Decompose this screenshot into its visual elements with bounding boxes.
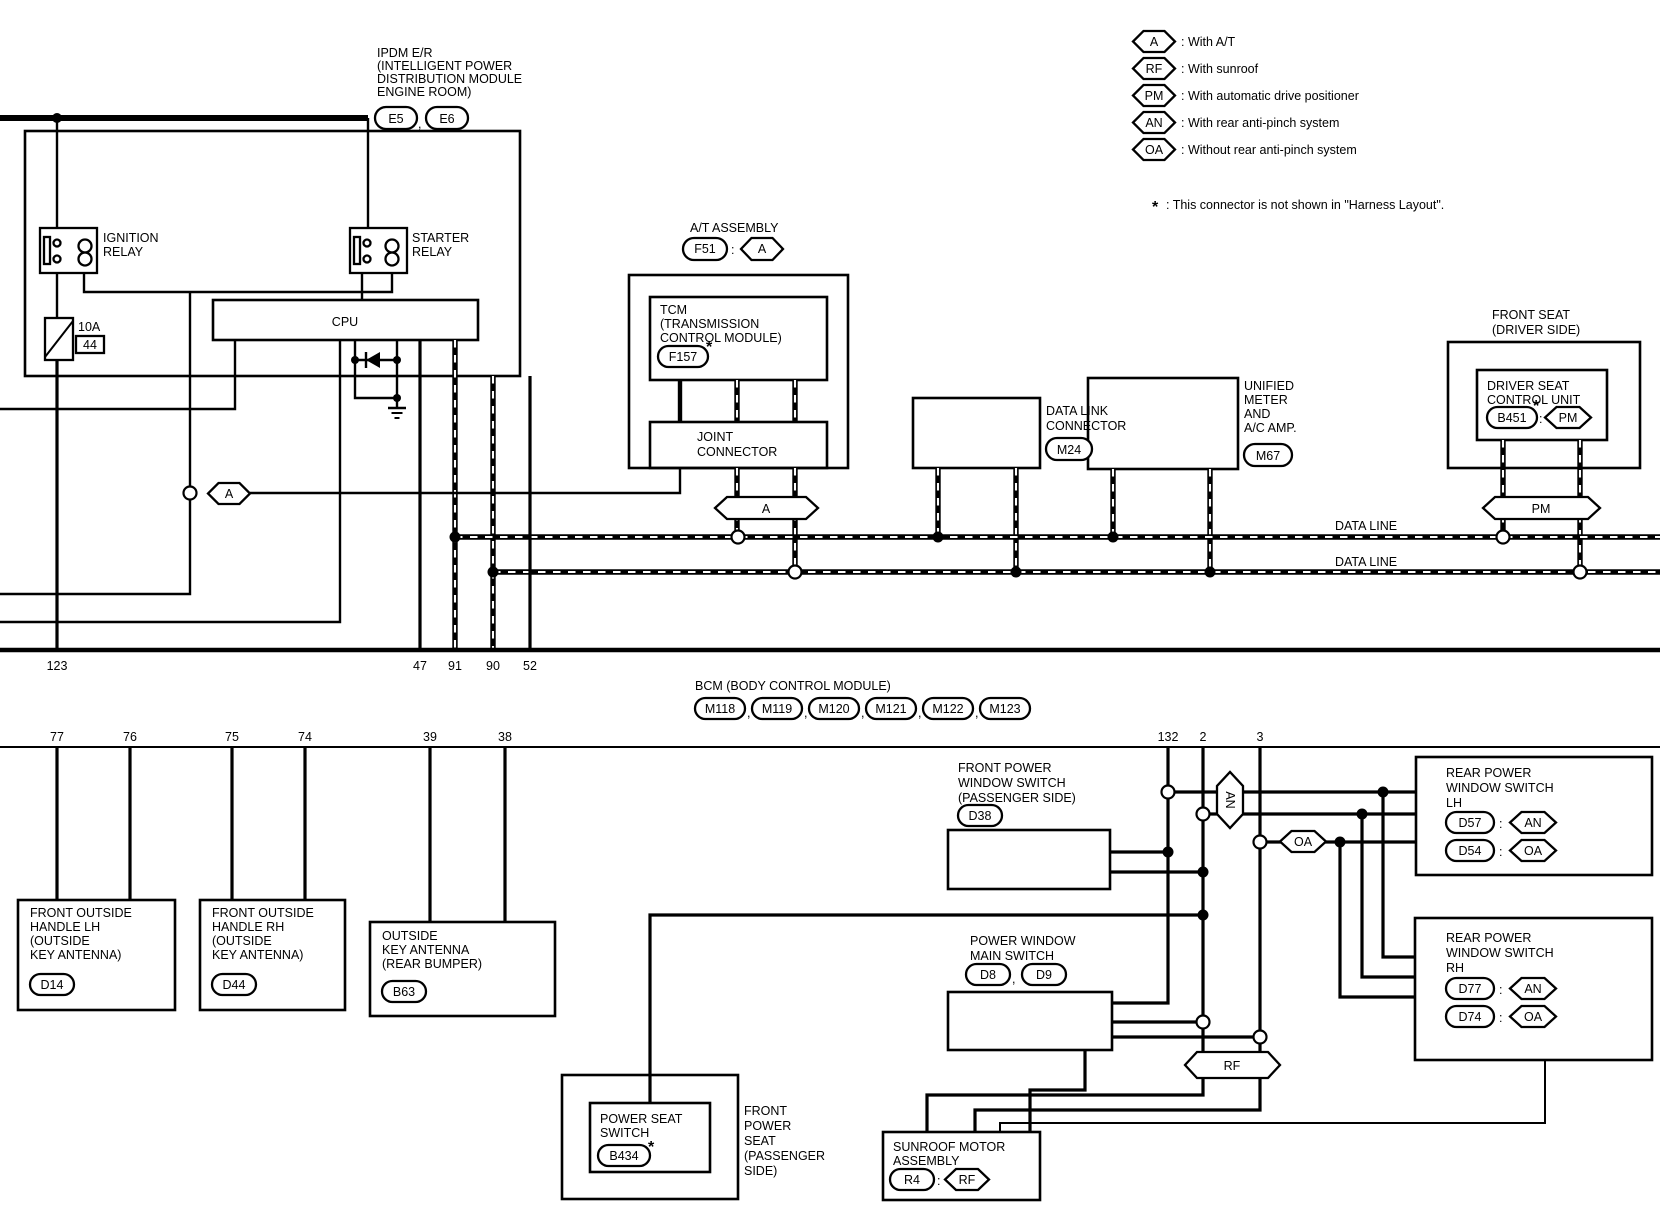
pin-132-wire xyxy=(1112,747,1168,1003)
sunroof-motor-assembly-label: SUNROOF MOTOR xyxy=(893,1140,1005,1154)
svg-text:CONNECTOR: CONNECTOR xyxy=(697,445,777,459)
data-line-2-label: DATA LINE xyxy=(1335,555,1397,569)
ignition-relay-contact-icon xyxy=(44,237,50,264)
outside-key-antenna-label: OUTSIDE xyxy=(382,929,438,943)
legend-an-desc: : With rear anti-pinch system xyxy=(1181,116,1339,130)
svg-text:RF: RF xyxy=(1224,1059,1241,1073)
svg-text:AN: AN xyxy=(1524,982,1541,996)
fuse-number-label: 44 xyxy=(83,338,97,352)
pin-90: 90 xyxy=(486,659,500,673)
connector-m122-label: M122 xyxy=(932,702,963,716)
svg-text::: : xyxy=(1499,983,1502,997)
svg-text:PM: PM xyxy=(1532,502,1551,516)
svg-text:ASSEMBLY: ASSEMBLY xyxy=(893,1154,960,1168)
svg-text:A: A xyxy=(1150,35,1159,49)
svg-text:RF: RF xyxy=(959,1173,976,1187)
svg-text:RELAY: RELAY xyxy=(412,245,453,259)
svg-text:LH: LH xyxy=(1446,796,1462,810)
svg-text:,: , xyxy=(1012,972,1015,986)
connector-b63-label: B63 xyxy=(393,985,415,999)
svg-text:CONNECTOR: CONNECTOR xyxy=(1046,419,1126,433)
driver-seat-control-unit-label: DRIVER SEAT xyxy=(1487,379,1570,393)
connector-f51-label: F51 xyxy=(694,242,716,256)
pin-77: 77 xyxy=(50,730,64,744)
pin-123: 123 xyxy=(47,659,68,673)
connector-m123-label: M123 xyxy=(989,702,1020,716)
svg-text:,: , xyxy=(861,706,864,720)
data-line-1-label: DATA LINE xyxy=(1335,519,1397,533)
svg-text:HANDLE RH: HANDLE RH xyxy=(212,920,284,934)
svg-text::: : xyxy=(1499,817,1502,831)
connector-d8-label: D8 xyxy=(980,968,996,982)
pin-132: 132 xyxy=(1158,730,1179,744)
svg-text:KEY ANTENNA): KEY ANTENNA) xyxy=(30,948,121,962)
connector-m121-label: M121 xyxy=(875,702,906,716)
svg-text::: : xyxy=(1499,1011,1502,1025)
pin-52: 52 xyxy=(523,659,537,673)
pin-74: 74 xyxy=(298,730,312,744)
svg-text::: : xyxy=(1499,845,1502,859)
svg-text:,: , xyxy=(975,706,978,720)
connector-m120-label: M120 xyxy=(818,702,849,716)
svg-text:RF: RF xyxy=(1146,62,1163,76)
data-link-connector-label: DATA LINK xyxy=(1046,404,1109,418)
front-outside-handle-rh-label: FRONT OUTSIDE xyxy=(212,906,314,920)
svg-text:POWER: POWER xyxy=(744,1119,791,1133)
connector-d44-label: D44 xyxy=(223,978,246,992)
connector-r4-label: R4 xyxy=(904,1173,920,1187)
starter-relay-coil-icon xyxy=(386,240,399,253)
power-window-main-switch-label: POWER WINDOW xyxy=(970,934,1076,948)
at-assembly-title: A/T ASSEMBLY xyxy=(690,221,779,235)
svg-text:A: A xyxy=(758,242,767,256)
svg-text:ENGINE ROOM): ENGINE ROOM) xyxy=(377,85,471,99)
svg-text:MAIN SWITCH: MAIN SWITCH xyxy=(970,949,1054,963)
labels: IPDM E/R (INTELLIGENT POWER DISTRIBUTION… xyxy=(30,35,1581,1188)
svg-text:,: , xyxy=(747,706,750,720)
ipdm-title: IPDM E/R xyxy=(377,46,433,60)
pin-91: 91 xyxy=(448,659,462,673)
svg-text:(OUTSIDE: (OUTSIDE xyxy=(212,934,272,948)
svg-text:KEY ANTENNA: KEY ANTENNA xyxy=(382,943,470,957)
data-link-connector-box xyxy=(913,398,1040,468)
wiring-diagram-canvas: IPDM E/R (INTELLIGENT POWER DISTRIBUTION… xyxy=(0,0,1660,1216)
connector-d57-label: D57 xyxy=(1459,816,1482,830)
svg-text:WINDOW SWITCH: WINDOW SWITCH xyxy=(1446,781,1554,795)
pin-76: 76 xyxy=(123,730,137,744)
legend-a-desc: : With A/T xyxy=(1181,35,1236,49)
rear-power-window-switch-lh-label: REAR POWER xyxy=(1446,766,1531,780)
connector-e5-label: E5 xyxy=(388,112,403,126)
svg-text:AND: AND xyxy=(1244,407,1270,421)
b434-asterisk: * xyxy=(648,1139,655,1156)
svg-text:AN: AN xyxy=(1223,791,1237,808)
svg-text:(OUTSIDE: (OUTSIDE xyxy=(30,934,90,948)
svg-text:CONTROL MODULE): CONTROL MODULE) xyxy=(660,331,782,345)
at-option-wire xyxy=(250,468,680,493)
connector-m67-label: M67 xyxy=(1256,449,1280,463)
svg-text:RH: RH xyxy=(1446,961,1464,975)
svg-text:SWITCH: SWITCH xyxy=(600,1126,649,1140)
connector-m24-label: M24 xyxy=(1057,443,1081,457)
svg-text::: : xyxy=(731,243,734,257)
pin-75: 75 xyxy=(225,730,239,744)
svg-text:A/C AMP.: A/C AMP. xyxy=(1244,421,1297,435)
front-power-window-switch-box xyxy=(948,830,1110,889)
f157-asterisk: * xyxy=(706,339,713,356)
svg-text:METER: METER xyxy=(1244,393,1288,407)
svg-text:HANDLE LH: HANDLE LH xyxy=(30,920,100,934)
connector-d77-label: D77 xyxy=(1459,982,1482,996)
svg-text:,: , xyxy=(418,117,421,131)
svg-text:OA: OA xyxy=(1145,143,1164,157)
svg-text:(REAR BUMPER): (REAR BUMPER) xyxy=(382,957,482,971)
harness-layout-note: : This connector is not shown in "Harnes… xyxy=(1166,198,1444,212)
svg-text:PM: PM xyxy=(1559,411,1578,425)
svg-text:,: , xyxy=(804,706,807,720)
legend-pm-desc: : With automatic drive positioner xyxy=(1181,89,1359,103)
connector-d9-label: D9 xyxy=(1036,968,1052,982)
front-power-window-switch-label: FRONT POWER xyxy=(958,761,1052,775)
ignition-relay-label: IGNITION xyxy=(103,231,159,245)
note-asterisk: * xyxy=(1152,199,1159,216)
rear-power-window-switch-rh-label: REAR POWER xyxy=(1446,931,1531,945)
power-seat-switch-label: POWER SEAT xyxy=(600,1112,683,1126)
connector-f157-label: F157 xyxy=(669,350,698,364)
svg-text:(TRANSMISSION: (TRANSMISSION xyxy=(660,317,759,331)
svg-text:AN: AN xyxy=(1524,816,1541,830)
joint-connector-label: JOINT xyxy=(697,430,733,444)
svg-text:A: A xyxy=(762,502,771,516)
svg-text:PM: PM xyxy=(1145,89,1164,103)
pin-39: 39 xyxy=(423,730,437,744)
svg-text:(INTELLIGENT POWER: (INTELLIGENT POWER xyxy=(377,59,512,73)
pin-38: 38 xyxy=(498,730,512,744)
connector-m118-label: M118 xyxy=(705,702,735,716)
svg-text:SEAT: SEAT xyxy=(744,1134,776,1148)
svg-text:(PASSENGER SIDE): (PASSENGER SIDE) xyxy=(958,791,1076,805)
svg-text:WINDOW SWITCH: WINDOW SWITCH xyxy=(1446,946,1554,960)
pin-47: 47 xyxy=(413,659,427,673)
svg-text:WINDOW SWITCH: WINDOW SWITCH xyxy=(958,776,1066,790)
cpu-label: CPU xyxy=(332,315,358,329)
connector-b434-label: B434 xyxy=(609,1149,638,1163)
front-seat-title: FRONT SEAT xyxy=(1492,308,1570,322)
svg-text:OA: OA xyxy=(1524,1010,1543,1024)
connector-b451-label: B451 xyxy=(1497,411,1526,425)
svg-text:,: , xyxy=(918,706,921,720)
connector-e6-label: E6 xyxy=(439,112,454,126)
svg-text:A: A xyxy=(225,487,234,501)
front-outside-handle-lh-label: FRONT OUTSIDE xyxy=(30,906,132,920)
power-window-main-switch-box xyxy=(948,992,1112,1050)
svg-text:OA: OA xyxy=(1524,844,1543,858)
fuse-rating-label: 10A xyxy=(78,320,101,334)
unified-meter-label: UNIFIED xyxy=(1244,379,1294,393)
starter-relay-label: STARTER xyxy=(412,231,469,245)
wiring-diagram-page: IPDM E/R (INTELLIGENT POWER DISTRIBUTION… xyxy=(0,0,1660,1216)
pin-2: 2 xyxy=(1200,730,1207,744)
connector-d14-label: D14 xyxy=(41,978,64,992)
connector-m119-label: M119 xyxy=(762,702,792,716)
svg-text:(PASSENGER: (PASSENGER xyxy=(744,1149,825,1163)
bcm-title: BCM (BODY CONTROL MODULE) xyxy=(695,679,891,693)
svg-text::: : xyxy=(1539,412,1542,426)
svg-text:DISTRIBUTION MODULE: DISTRIBUTION MODULE xyxy=(377,72,522,86)
legend-oa-desc: : Without rear anti-pinch system xyxy=(1181,143,1357,157)
connector-d74-label: D74 xyxy=(1459,1010,1482,1024)
starter-relay-contact-icon xyxy=(354,237,360,264)
shielded-wires xyxy=(455,340,1660,650)
legend-rf-desc: : With sunroof xyxy=(1181,62,1259,76)
junction-markers xyxy=(52,113,1587,1044)
svg-text::: : xyxy=(937,1174,940,1188)
svg-text:AN: AN xyxy=(1145,116,1162,130)
connector-d54-label: D54 xyxy=(1459,844,1482,858)
tcm-label: TCM xyxy=(660,303,687,317)
svg-text:KEY ANTENNA): KEY ANTENNA) xyxy=(212,948,303,962)
ignition-relay-coil-icon xyxy=(79,240,92,253)
connector-d38-label: D38 xyxy=(969,809,992,823)
pin-3: 3 xyxy=(1257,730,1264,744)
svg-text:(DRIVER SIDE): (DRIVER SIDE) xyxy=(1492,323,1580,337)
svg-text:RELAY: RELAY xyxy=(103,245,144,259)
svg-text:SIDE): SIDE) xyxy=(744,1164,777,1178)
svg-text:OA: OA xyxy=(1294,835,1313,849)
front-power-seat-label: FRONT xyxy=(744,1104,787,1118)
